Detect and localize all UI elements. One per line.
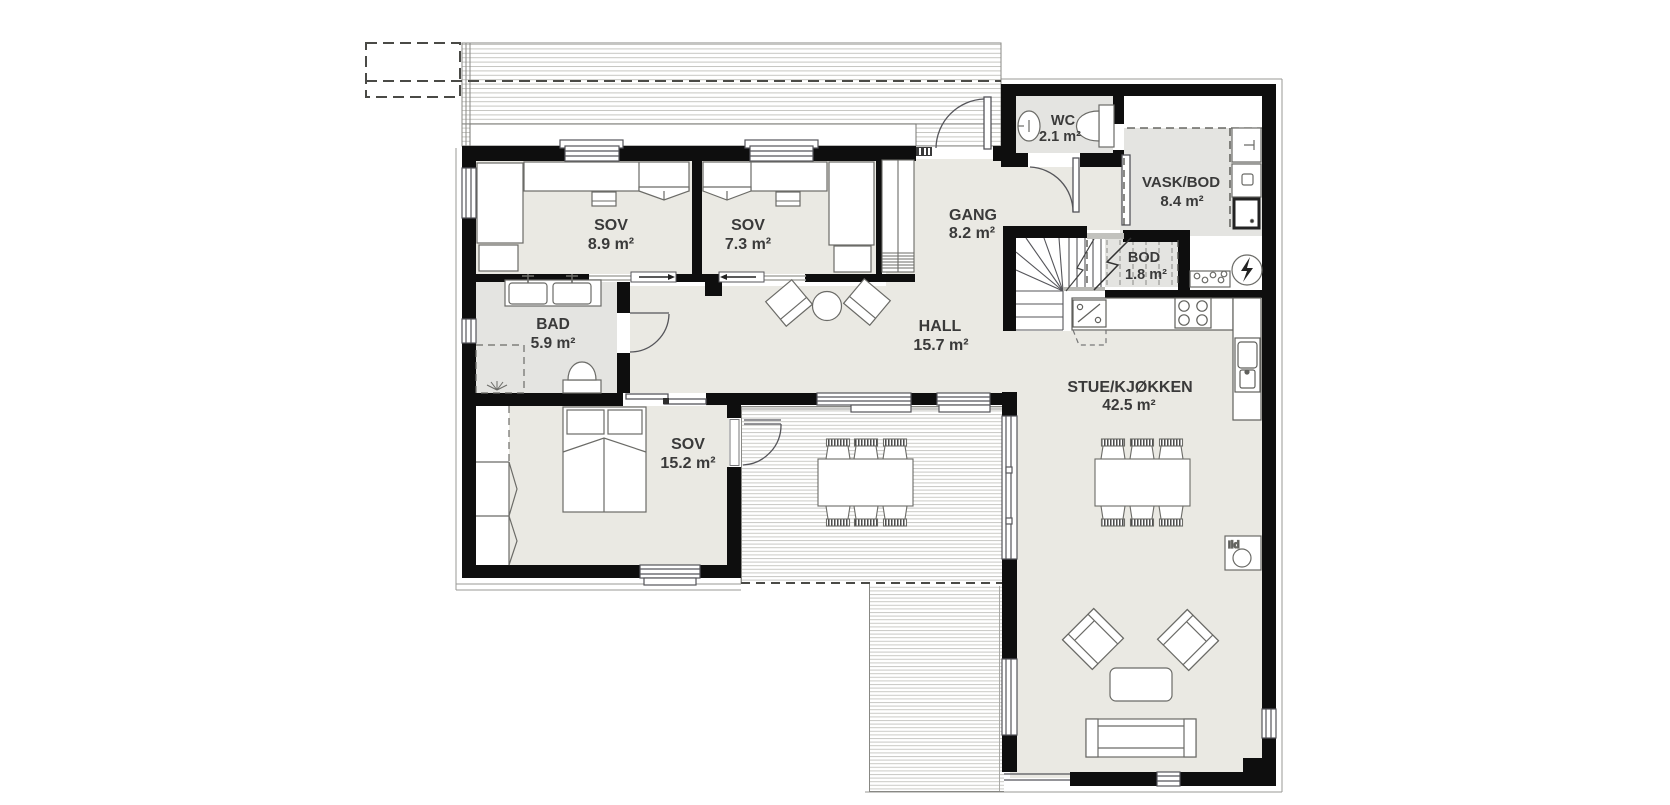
svg-text:STUE/KJØKKEN: STUE/KJØKKEN xyxy=(1067,379,1192,396)
svg-text:7.3 m²: 7.3 m² xyxy=(725,236,771,253)
svg-text:HALL: HALL xyxy=(919,318,962,335)
svg-text:Ild: Ild xyxy=(1228,540,1240,551)
svg-text:GANG: GANG xyxy=(949,207,997,224)
svg-text:BOD: BOD xyxy=(1128,250,1160,266)
svg-text:WC: WC xyxy=(1051,113,1076,129)
svg-text:15.7 m²: 15.7 m² xyxy=(913,337,968,354)
svg-text:15.2 m²: 15.2 m² xyxy=(660,455,715,472)
svg-text:5.9 m²: 5.9 m² xyxy=(531,335,576,352)
svg-text:8.4 m²: 8.4 m² xyxy=(1160,193,1203,210)
svg-text:42.5 m²: 42.5 m² xyxy=(1102,397,1155,414)
svg-text:1.8 m²: 1.8 m² xyxy=(1125,267,1167,283)
svg-text:SOV: SOV xyxy=(594,217,628,234)
svg-text:BAD: BAD xyxy=(536,316,570,333)
svg-text:SOV: SOV xyxy=(731,217,765,234)
svg-text:SOV: SOV xyxy=(671,436,705,453)
svg-text:VASK/BOD: VASK/BOD xyxy=(1142,174,1220,191)
svg-text:8.2 m²: 8.2 m² xyxy=(949,225,995,242)
svg-text:8.9 m²: 8.9 m² xyxy=(588,236,634,253)
svg-text:2.1 m²: 2.1 m² xyxy=(1039,129,1081,145)
